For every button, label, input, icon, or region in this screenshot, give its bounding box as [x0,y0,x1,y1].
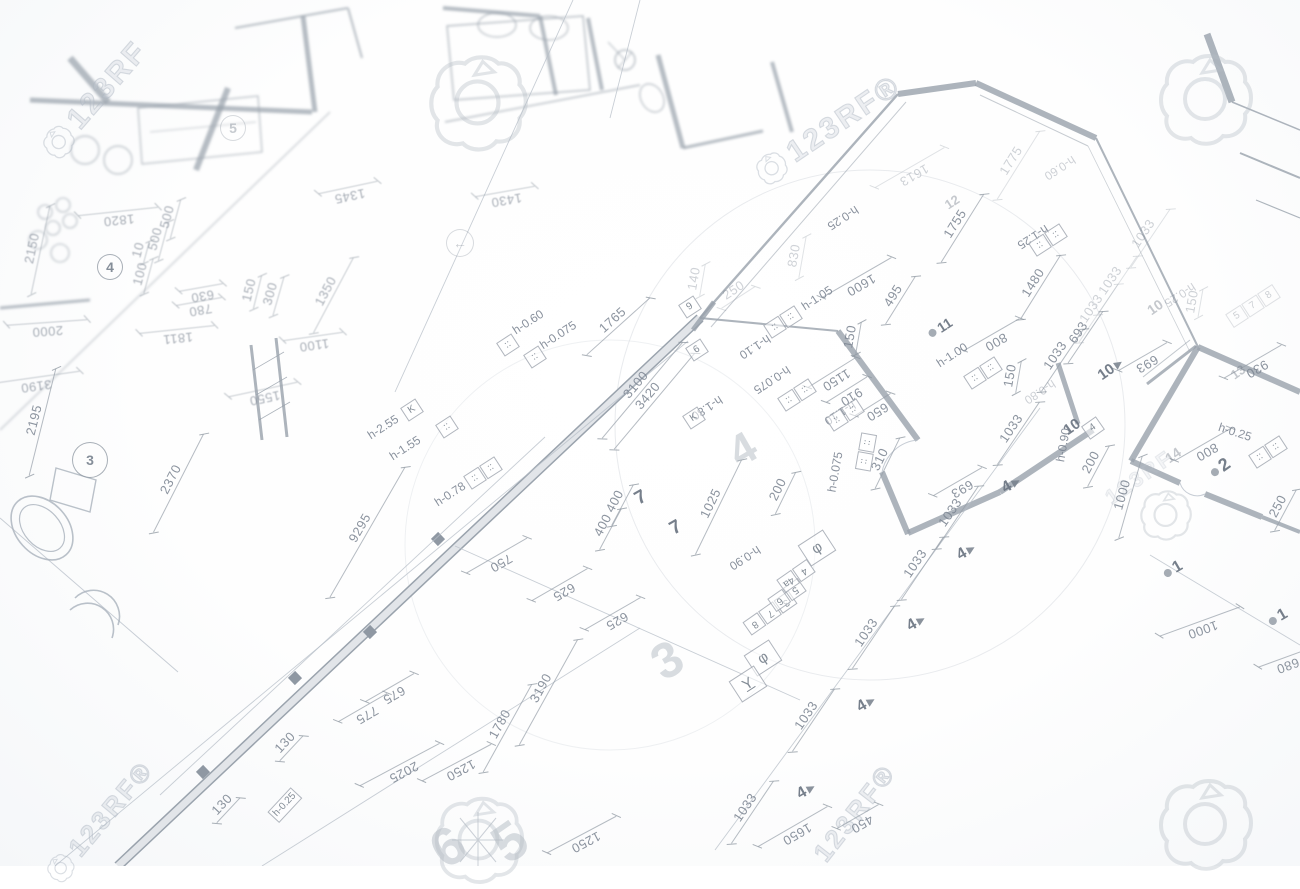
background-plan-walls [0,8,792,430]
main-walls [115,34,1300,866]
bathroom-fixtures [0,468,120,638]
guide-lines [0,0,1300,866]
construction-arcs [405,170,1125,750]
blueprint-linework [0,0,1300,866]
blueprint-photo: 123RF123RF®123RF®123RF®123RF 92957506256… [0,0,1300,866]
cross-mark [452,812,504,866]
